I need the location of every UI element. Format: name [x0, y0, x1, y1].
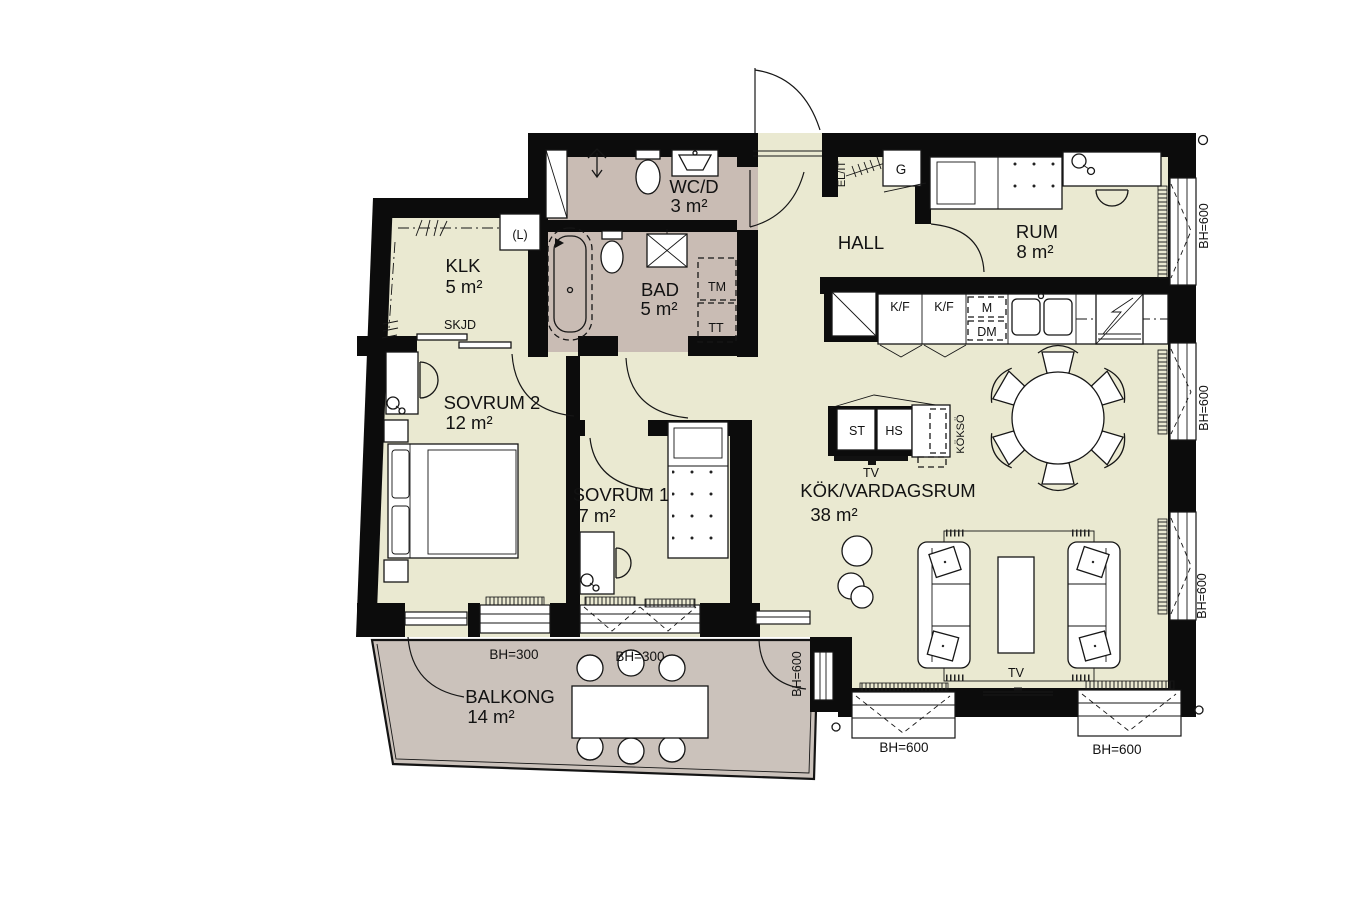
room-area-balkong: 14 m² — [467, 706, 514, 727]
label-bh600-east-2: BH=600 — [1197, 385, 1211, 431]
sofa-left — [918, 542, 970, 668]
double-bed — [388, 444, 518, 558]
room-label-sovrum1: SOVRUM 1 — [573, 484, 670, 505]
label-bh300-2: BH=300 — [615, 649, 664, 664]
label-tt: TT — [708, 321, 724, 335]
nightstand — [384, 420, 408, 442]
room-label-bad: BAD — [641, 279, 679, 300]
corner-marker-icon — [1199, 136, 1208, 145]
room-area-rum: 8 m² — [1017, 241, 1054, 262]
toilet-bad — [601, 231, 623, 273]
room-label-hall: HALL — [838, 232, 884, 253]
label-el-it: EL/IT — [836, 161, 848, 188]
shaft-box-kitchen — [832, 292, 876, 336]
toilet-wcd — [636, 150, 660, 194]
window-sovrum2 — [480, 597, 550, 633]
label-bh600-south-1: BH=600 — [879, 740, 928, 755]
corner-marker-icon — [832, 723, 840, 731]
label-kf-2: K/F — [934, 300, 954, 314]
room-area-kok: 38 m² — [810, 504, 857, 525]
label-bh600-south-2: BH=600 — [1092, 742, 1141, 757]
bed-rum — [930, 157, 1062, 209]
label-linen: (L) — [512, 228, 527, 242]
balcony-table — [572, 686, 708, 738]
nightstand — [384, 560, 408, 582]
washbasin-wcd — [672, 150, 718, 176]
room-area-wcd: 3 m² — [671, 195, 708, 216]
room-label-balkong: BALKONG — [465, 686, 554, 707]
label-st: ST — [849, 424, 865, 438]
room-label-klk: KLK — [446, 255, 482, 276]
floor-plan-drawing: WC/D 3 m² BAD 5 m² KLK 5 m² HALL RUM 8 m… — [0, 0, 1366, 911]
room-label-rum: RUM — [1016, 221, 1058, 242]
label-garderob: G — [896, 162, 907, 177]
label-bh300-1: BH=300 — [489, 647, 538, 662]
shower-tray — [647, 229, 687, 267]
label-kf-1: K/F — [890, 300, 910, 314]
room-label-sovrum2: SOVRUM 2 — [444, 392, 541, 413]
window-south-2 — [1078, 681, 1181, 736]
room-area-klk: 5 m² — [446, 276, 483, 297]
label-dm: DM — [977, 325, 996, 339]
room-label-wcd: WC/D — [669, 176, 718, 197]
round-dining-table — [1012, 372, 1104, 464]
stove-icon — [1096, 294, 1143, 344]
single-bed — [668, 422, 728, 558]
label-tv-bench: TV — [863, 466, 880, 480]
window-east-1 — [1158, 178, 1196, 285]
balcony-chair — [577, 655, 603, 681]
window-east-3 — [1158, 512, 1196, 620]
window-south-1 — [852, 683, 955, 738]
balcony-chair — [659, 736, 685, 762]
label-micro: M — [982, 301, 992, 315]
window-east-2 — [1158, 343, 1196, 440]
kitchen-island — [912, 405, 950, 457]
label-bh600-balcony: BH=600 — [790, 651, 804, 697]
label-bh600-east-1: BH=600 — [1197, 203, 1211, 249]
sofa-right — [1068, 542, 1120, 668]
window-balcony-side — [814, 652, 833, 700]
room-area-sovrum1: 7 m² — [579, 505, 616, 526]
label-kokso: KÖKSÖ — [955, 414, 967, 454]
label-tm: TM — [708, 280, 726, 294]
coffee-table — [998, 557, 1034, 653]
tv-on-bench-icon — [834, 456, 908, 461]
label-tv-wall: TV — [1008, 666, 1025, 680]
room-area-sovrum2: 12 m² — [445, 412, 492, 433]
label-skjd: SKJD — [444, 318, 476, 332]
shaft-box-wcd — [546, 150, 567, 218]
room-area-bad: 5 m² — [641, 298, 678, 319]
label-bh600-east-3: BH=600 — [1195, 573, 1209, 619]
corner-marker-icon — [1195, 706, 1203, 714]
floor-plan-page: WC/D 3 m² BAD 5 m² KLK 5 m² HALL RUM 8 m… — [0, 0, 1366, 911]
room-label-kok: KÖK/VARDAGSRUM — [800, 480, 975, 501]
balcony-chair — [618, 738, 644, 764]
label-hs: HS — [885, 424, 902, 438]
